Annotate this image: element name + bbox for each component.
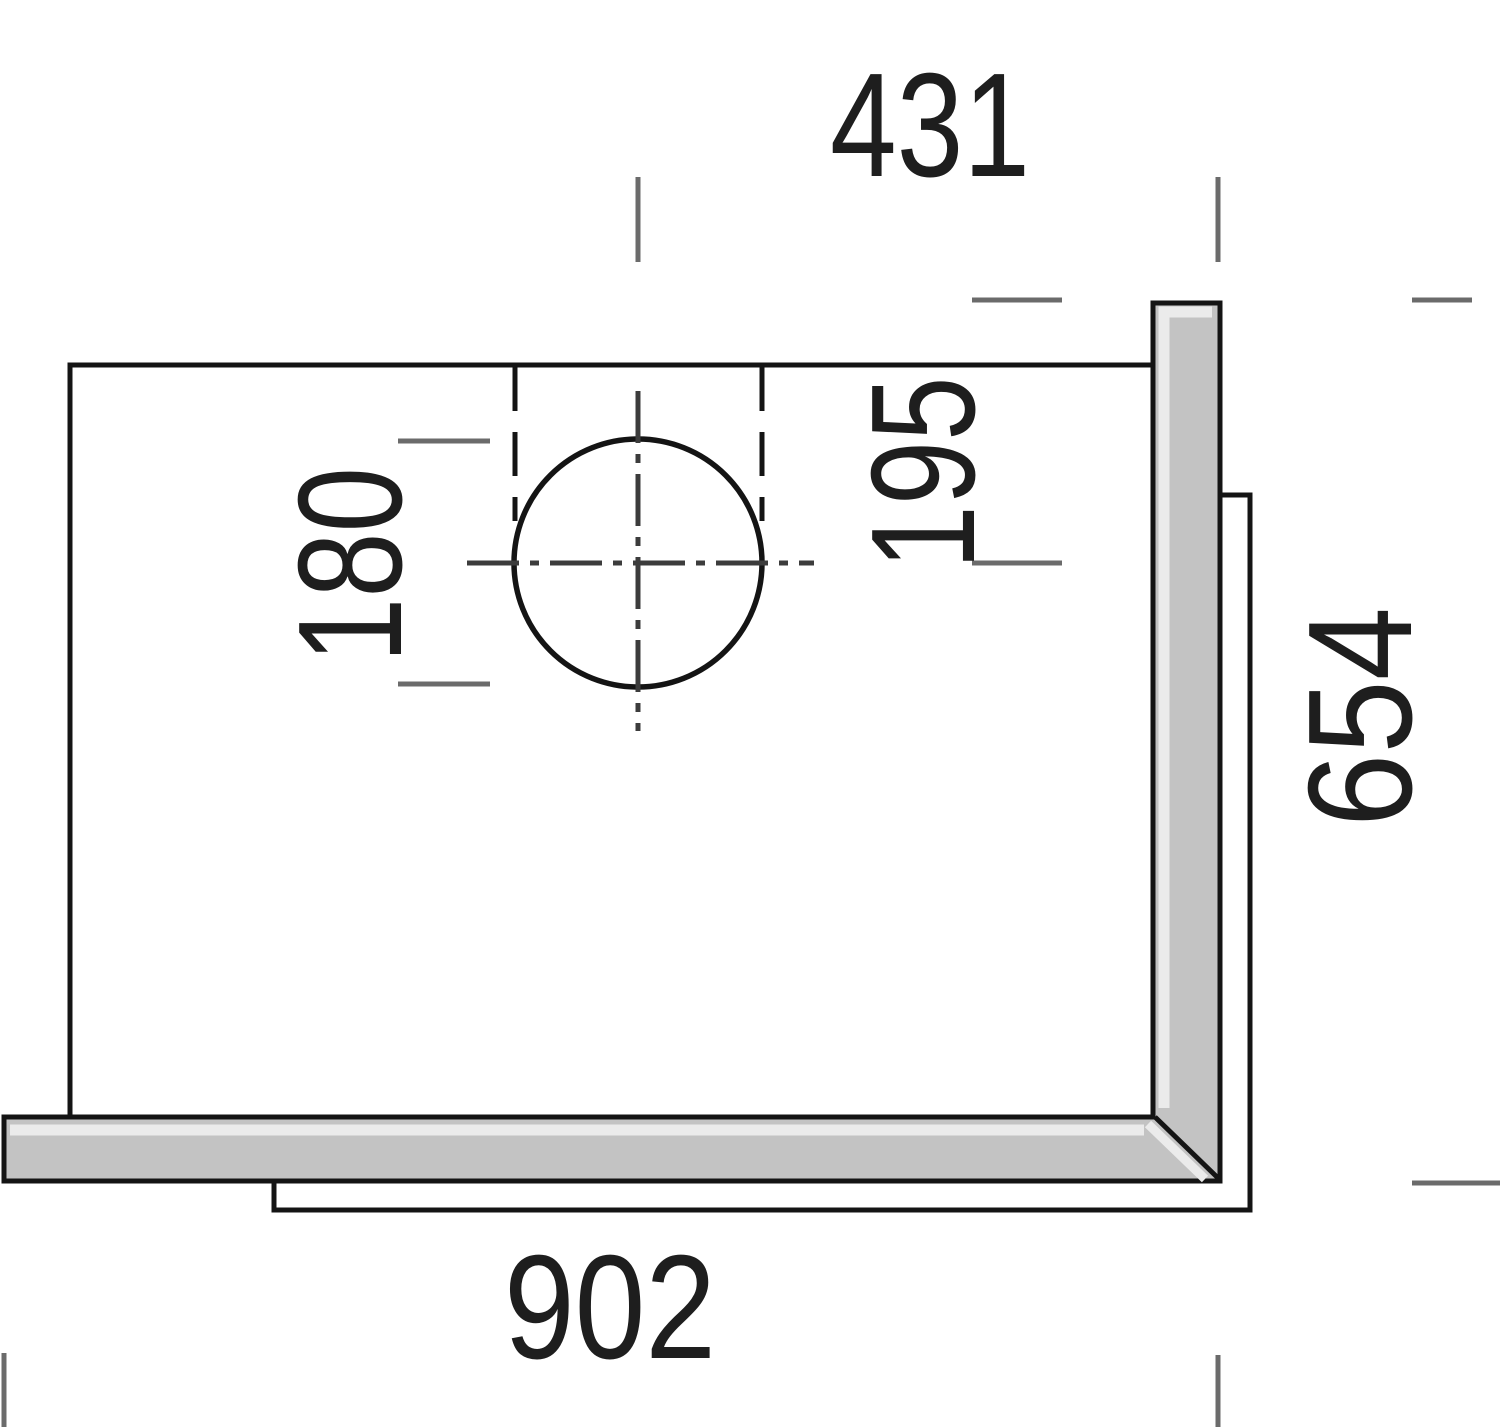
dimension-label-right: 654 <box>1278 607 1443 827</box>
dimension-label-flue-offset: 195 <box>841 377 1006 570</box>
dimension-label-bottom: 902 <box>504 1225 716 1390</box>
technical-drawing: 431 195 180 654 902 <box>0 0 1500 1427</box>
drawing-canvas: 431 195 180 654 902 <box>0 0 1500 1427</box>
dimension-label-top: 431 <box>830 43 1030 208</box>
dimension-label-flue-diameter: 180 <box>268 467 433 663</box>
